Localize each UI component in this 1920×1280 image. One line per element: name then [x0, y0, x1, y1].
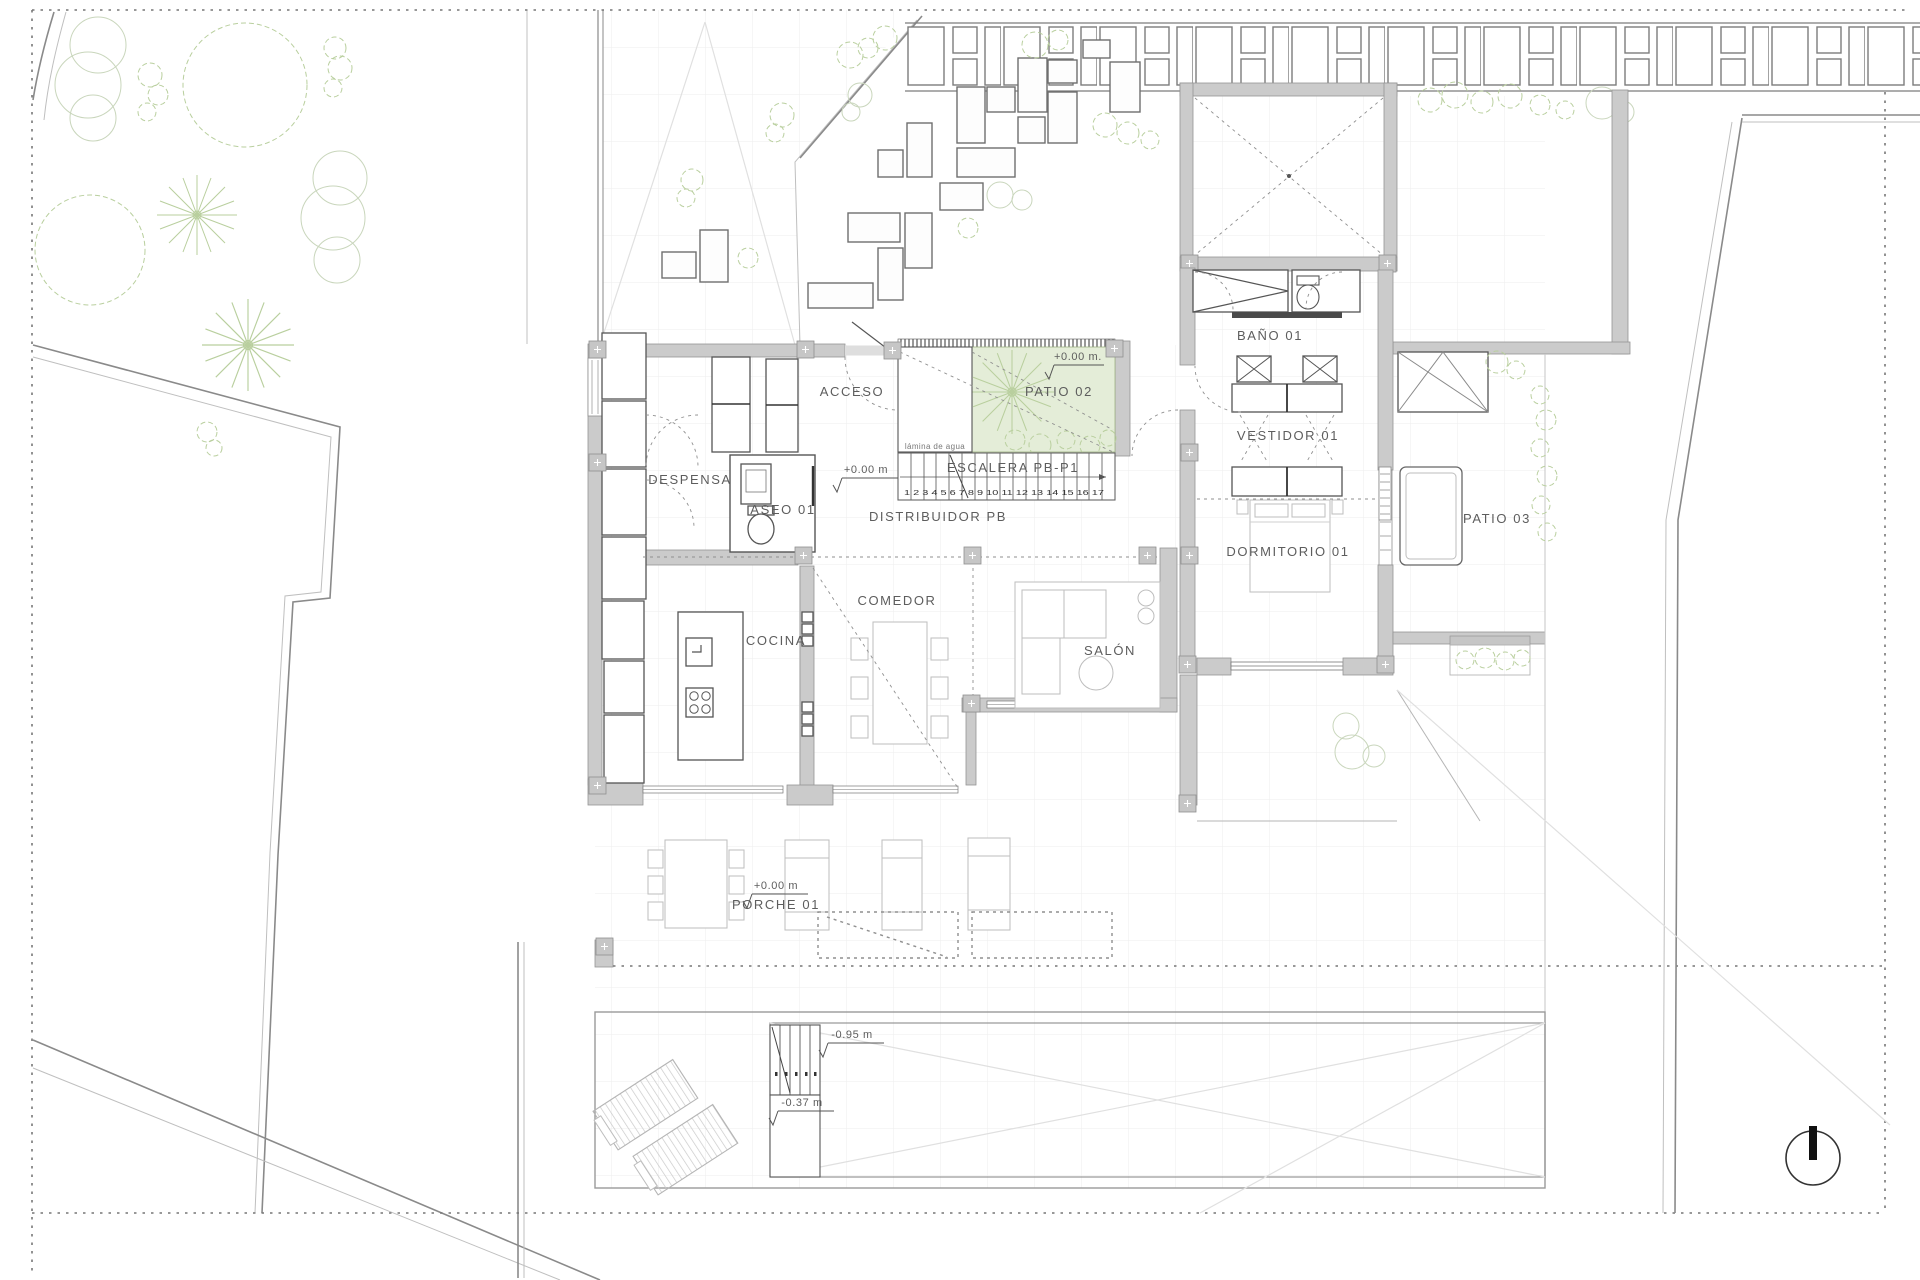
floor-plan-page: ACCESO PATIO 02 DESPENSA ASEO 01 ESCALER… — [0, 0, 1920, 1280]
label-escalera: ESCALERA PB-P1 — [947, 460, 1079, 475]
svg-text:+0.00 m.: +0.00 m. — [1054, 351, 1102, 363]
bathroom-01 — [1193, 270, 1360, 318]
svg-text:+0.00 m: +0.00 m — [754, 880, 798, 892]
label-vestidor01: VESTIDOR 01 — [1237, 428, 1339, 443]
label-water-feature: lámina de agua — [905, 442, 965, 451]
label-patio02: PATIO 02 — [1025, 384, 1093, 399]
label-acceso: ACCESO — [820, 384, 885, 399]
label-bano01: BAÑO 01 — [1237, 328, 1303, 343]
north-arrow-icon — [1786, 1126, 1840, 1185]
label-cocina: COCINA — [746, 633, 806, 648]
label-despensa: DESPENSA — [648, 472, 732, 487]
svg-text:-0.95 m: -0.95 m — [831, 1029, 873, 1041]
label-salon: SALÓN — [1084, 643, 1136, 658]
site-plan-svg: ACCESO PATIO 02 DESPENSA ASEO 01 ESCALER… — [0, 0, 1920, 1280]
patio-02 — [898, 347, 1116, 456]
svg-text:-0.37 m: -0.37 m — [781, 1097, 823, 1109]
label-dormitorio01: DORMITORIO 01 — [1226, 544, 1349, 559]
dining-table — [851, 622, 948, 744]
stair-tread-numbers: 1 2 3 4 5 6 7 8 9 10 11 12 13 14 15 16 1… — [904, 490, 1104, 497]
label-aseo01: ASEO 01 — [750, 502, 815, 517]
label-distribuidor: DISTRIBUIDOR PB — [869, 509, 1007, 524]
svg-text:+0.00 m: +0.00 m — [844, 464, 888, 476]
label-patio03: PATIO 03 — [1463, 511, 1531, 526]
label-comedor: COMEDOR — [857, 593, 936, 608]
neighbor-plot-boundary — [33, 12, 600, 1280]
kitchen-island — [678, 612, 743, 760]
